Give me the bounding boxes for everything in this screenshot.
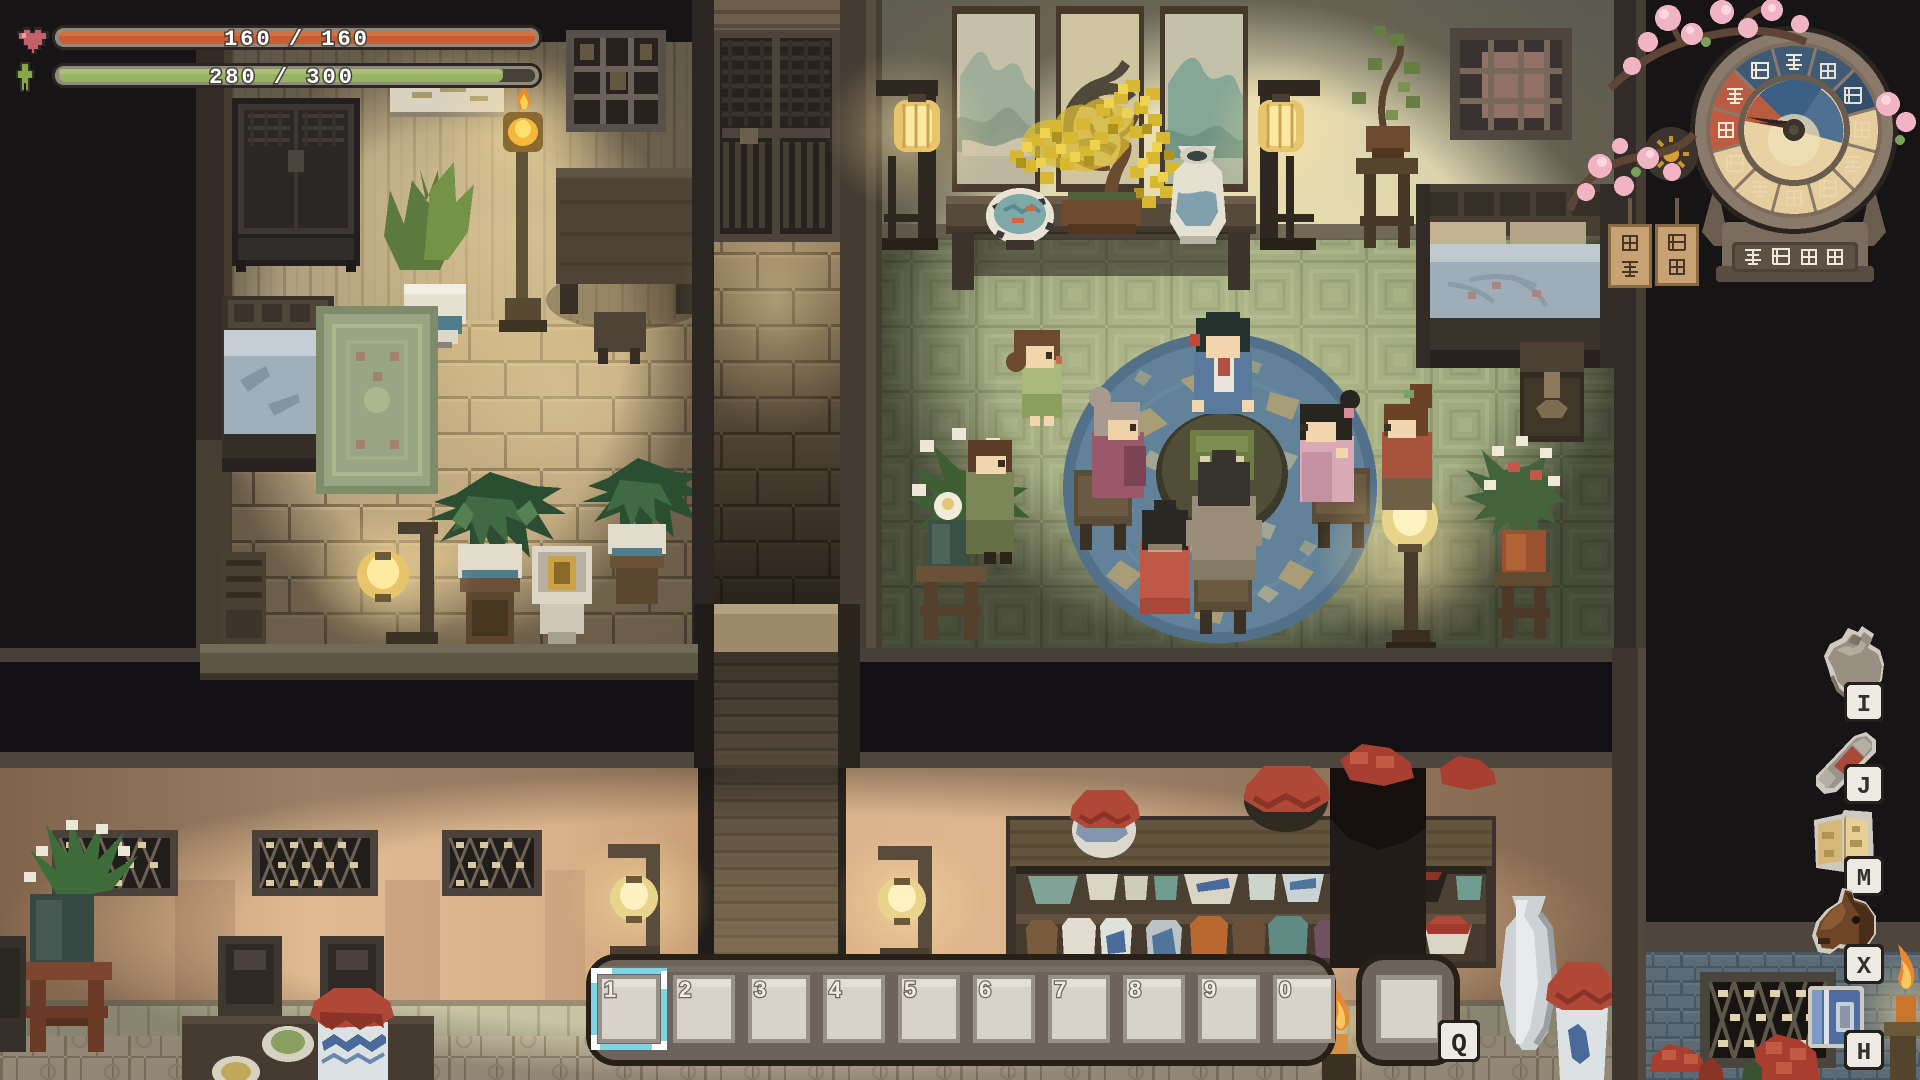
svg-text:J: J: [1857, 774, 1871, 801]
svg-text:X: X: [1857, 954, 1872, 981]
svg-text:8: 8: [1129, 977, 1141, 1002]
svg-text:Q: Q: [1451, 1029, 1467, 1059]
svg-text:9: 9: [1204, 977, 1216, 1002]
svg-text:2: 2: [679, 977, 691, 1002]
svg-text:0: 0: [1279, 977, 1291, 1002]
svg-text:280 / 300: 280 / 300: [209, 65, 355, 90]
svg-text:3: 3: [754, 977, 766, 1002]
svg-text:I: I: [1857, 692, 1871, 719]
svg-text:4: 4: [829, 977, 842, 1002]
svg-text:6: 6: [979, 977, 991, 1002]
svg-text:5: 5: [904, 977, 916, 1002]
svg-text:M: M: [1857, 866, 1871, 893]
svg-text:160 / 160: 160 / 160: [224, 27, 370, 52]
svg-text:7: 7: [1054, 977, 1066, 1002]
svg-text:H: H: [1857, 1040, 1871, 1067]
svg-text:1: 1: [604, 977, 616, 1002]
